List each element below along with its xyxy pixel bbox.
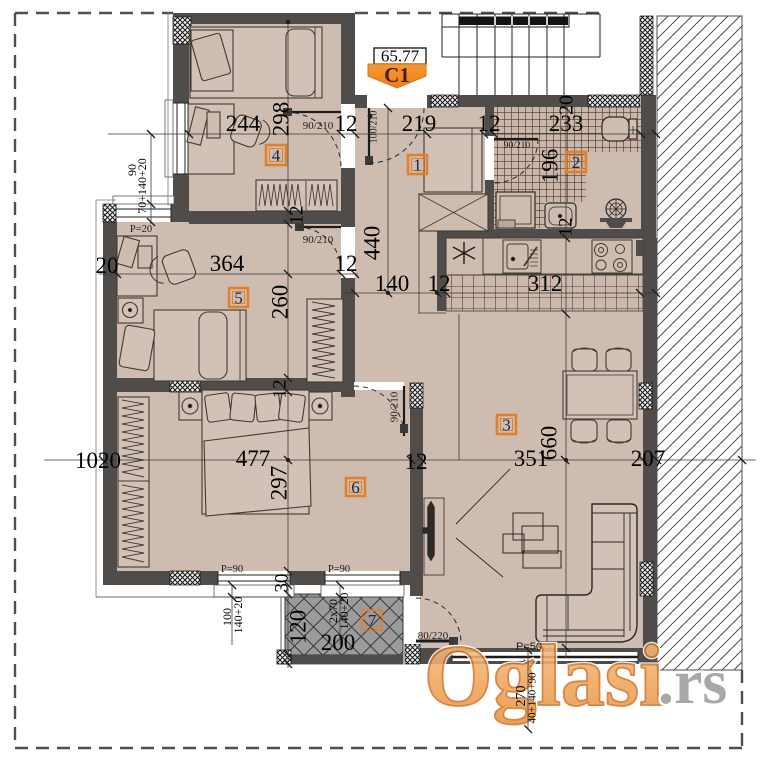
svg-text:12: 12 <box>405 449 428 474</box>
svg-text:140+20: 140+20 <box>337 593 351 630</box>
svg-text:P=50: P=50 <box>516 641 542 653</box>
svg-text:364: 364 <box>210 251 245 276</box>
svg-text:12: 12 <box>335 251 358 276</box>
svg-text:Oglasi: Oglasi <box>424 628 664 725</box>
svg-text:12: 12 <box>269 380 290 399</box>
svg-text:.rs: .rs <box>658 646 727 717</box>
svg-text:200: 200 <box>321 630 356 655</box>
svg-text:20: 20 <box>96 253 119 278</box>
svg-text:196: 196 <box>537 149 562 184</box>
svg-text:1020: 1020 <box>75 448 121 473</box>
svg-text:140+20: 140+20 <box>231 597 245 634</box>
svg-text:70+140+20: 70+140+20 <box>135 158 149 214</box>
svg-text:3: 3 <box>502 416 511 435</box>
svg-text:90/210: 90/210 <box>303 234 334 246</box>
svg-text:90/210: 90/210 <box>303 120 334 132</box>
svg-text:260: 260 <box>267 285 292 320</box>
svg-text:P=90: P=90 <box>328 564 350 575</box>
svg-text:12: 12 <box>478 111 501 136</box>
svg-text:4: 4 <box>272 146 281 165</box>
svg-text:C1: C1 <box>384 63 410 87</box>
svg-text:207: 207 <box>631 446 666 471</box>
svg-text:100/210: 100/210 <box>368 111 379 144</box>
svg-text:12: 12 <box>428 271 451 296</box>
svg-text:12: 12 <box>286 206 307 225</box>
svg-text:90/210: 90/210 <box>504 141 531 151</box>
svg-text:660: 660 <box>536 426 561 461</box>
svg-text:298: 298 <box>268 102 293 137</box>
svg-text:244: 244 <box>226 111 261 136</box>
svg-text:219: 219 <box>402 111 437 136</box>
svg-text:P=90: P=90 <box>221 564 243 575</box>
svg-text:477: 477 <box>236 446 271 471</box>
svg-text:440: 440 <box>359 226 384 261</box>
svg-text:90/210: 90/210 <box>389 391 401 422</box>
svg-text:12: 12 <box>335 111 358 136</box>
svg-text:12: 12 <box>555 218 576 237</box>
svg-text:P=20: P=20 <box>130 224 152 235</box>
svg-text:30: 30 <box>271 574 292 593</box>
svg-text:20: 20 <box>556 95 578 115</box>
svg-text:40+140+90: 40+140+90 <box>527 672 539 723</box>
svg-text:120: 120 <box>285 610 310 645</box>
svg-text:2: 2 <box>572 153 581 172</box>
svg-text:312: 312 <box>528 271 563 296</box>
svg-text:140: 140 <box>375 271 410 296</box>
svg-text:297: 297 <box>266 466 291 501</box>
svg-text:1: 1 <box>413 156 422 175</box>
svg-text:7: 7 <box>368 611 377 630</box>
svg-text:5: 5 <box>234 289 243 308</box>
svg-text:6: 6 <box>351 478 360 497</box>
